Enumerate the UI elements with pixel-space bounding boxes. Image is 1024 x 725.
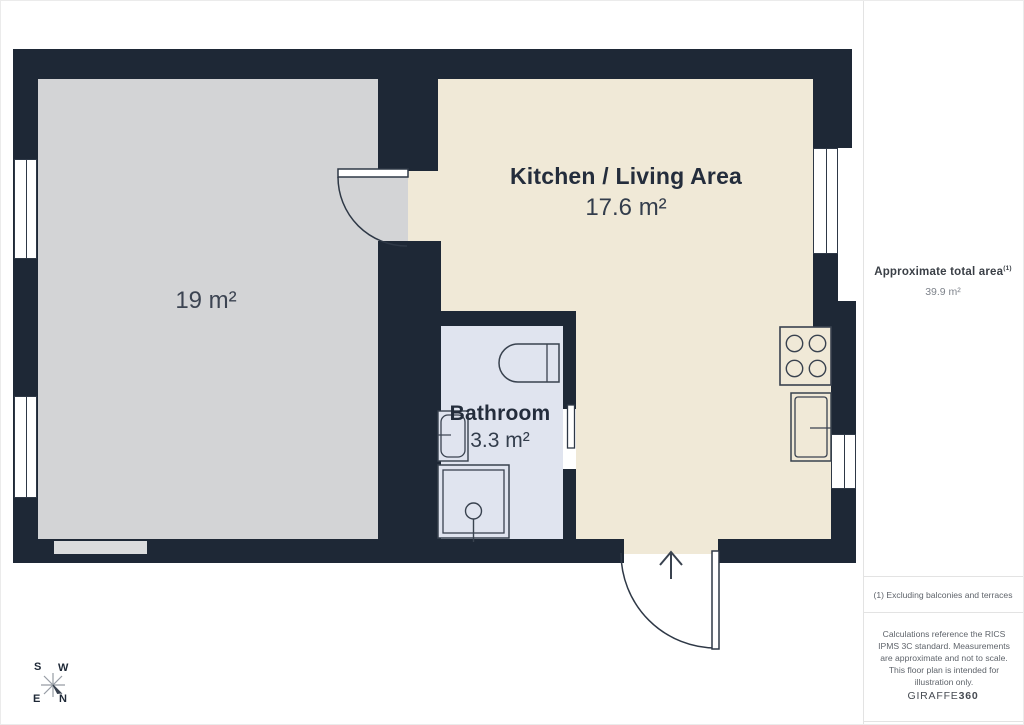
total-area-block: Approximate total area(1) 39.9 m² xyxy=(867,265,1019,298)
entry-arrow-icon xyxy=(660,552,682,579)
total-area-footnote-marker: (1) xyxy=(1003,265,1012,272)
floor-plan-page: Kitchen / Living Area 17.6 m² 19 m² Bath… xyxy=(0,0,1024,725)
room-name: Bathroom xyxy=(436,402,564,426)
right-wall-step xyxy=(813,301,856,331)
right-corner-block xyxy=(813,49,852,148)
window-icon xyxy=(14,159,37,259)
window-mullion xyxy=(26,397,27,497)
sidebar-left-divider xyxy=(863,1,864,725)
interior-doorway-floor-cream xyxy=(408,171,438,241)
brand-suffix: 360 xyxy=(959,690,979,702)
brand-name: GIRAFFE xyxy=(907,690,958,702)
window-mullion xyxy=(26,160,27,258)
kitchen-floor-lower xyxy=(576,311,831,539)
total-area-label-text: Approximate total area xyxy=(874,266,1003,278)
room-name: Kitchen / Living Area xyxy=(438,163,814,190)
total-area-label: Approximate total area(1) xyxy=(867,265,1019,278)
top-recess-cover xyxy=(114,49,286,61)
bottom-recess xyxy=(54,541,147,554)
living-room-label: 19 m² xyxy=(121,287,291,315)
partition-wall-upper xyxy=(378,49,438,171)
room-area: 19 m² xyxy=(121,287,291,315)
sidebar-divider xyxy=(864,576,1024,577)
bathroom-right-wall-upper xyxy=(563,311,576,409)
compass-letter-e: E xyxy=(33,693,40,705)
window-mullion xyxy=(826,149,827,253)
interior-doorway-floor-gray xyxy=(378,171,408,241)
bathroom-door-icon xyxy=(568,405,575,448)
entry-threshold-floor xyxy=(624,539,718,554)
window-icon xyxy=(14,396,37,498)
bathroom-room-label: Bathroom 3.3 m² xyxy=(436,402,564,453)
entry-door-icon xyxy=(621,551,719,649)
room-area: 3.3 m² xyxy=(436,429,564,453)
disclaimer-text: Calculations reference the RICS IPMS 3C … xyxy=(875,628,1013,688)
window-icon xyxy=(813,148,838,254)
compass-letter-w: W xyxy=(58,662,68,674)
bathroom-top-wall xyxy=(438,311,576,326)
sidebar-divider xyxy=(864,612,1024,613)
window-icon xyxy=(831,434,856,489)
footnote-text: (1) Excluding balconies and terraces xyxy=(867,590,1019,600)
partition-wall-lower xyxy=(378,241,441,539)
brand-logo: GIRAFFE360 xyxy=(867,690,1019,702)
sidebar-bottom-divider xyxy=(864,721,1024,722)
window-mullion xyxy=(844,435,845,488)
total-area-value: 39.9 m² xyxy=(867,286,1019,298)
compass-letter-n: N xyxy=(59,693,67,705)
kitchen-room-label: Kitchen / Living Area 17.6 m² xyxy=(438,163,814,222)
room-area: 17.6 m² xyxy=(438,194,814,222)
compass-letter-s: S xyxy=(34,661,41,673)
bathroom-right-wall-lower xyxy=(563,469,576,539)
